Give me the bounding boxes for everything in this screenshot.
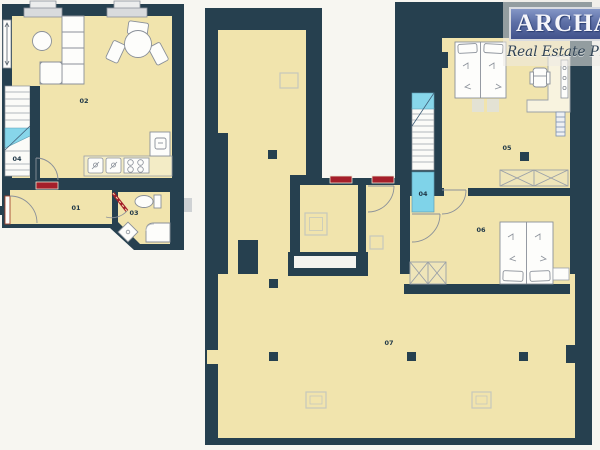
- bedside-rug: [487, 99, 499, 112]
- room-label-03: 03: [129, 209, 138, 217]
- room06-south-wall: [404, 284, 570, 294]
- room-label-01: 01: [71, 204, 81, 212]
- wall-stub: [238, 240, 258, 274]
- window-radiator: [3, 20, 11, 68]
- hallway-floor: [10, 190, 112, 224]
- column: [269, 279, 278, 288]
- room-label-07: 07: [384, 339, 393, 347]
- door-handle-tab: [184, 198, 192, 212]
- office-chair: [530, 68, 550, 87]
- lightwell-shaft: [294, 256, 356, 268]
- column: [269, 352, 278, 361]
- wardrobe-room06: [410, 262, 446, 284]
- room-label-04-right: 04: [418, 190, 428, 198]
- toilet: [135, 195, 161, 208]
- room-label-02: 02: [79, 97, 88, 105]
- left-staircase: [5, 86, 40, 178]
- radiator: [556, 112, 565, 136]
- stove: [124, 158, 149, 173]
- room05-06-wall-opening: [444, 188, 468, 196]
- room-label-05: 05: [502, 144, 512, 152]
- bay-window-right: [107, 1, 147, 17]
- middle-hall-floor: [366, 185, 400, 277]
- nightstand: [553, 268, 569, 280]
- side-table: [33, 32, 52, 51]
- brand-name: ARCHA: [516, 10, 600, 38]
- door-sill-red: [372, 176, 394, 183]
- bay-window-left: [24, 1, 62, 17]
- column: [268, 150, 277, 159]
- logo-banner: ARCHA: [509, 7, 600, 41]
- left-staircase-wall: [30, 86, 40, 178]
- column: [520, 152, 529, 161]
- bedside-rug: [472, 99, 484, 112]
- room05-wall-tab: [442, 52, 448, 68]
- left-unit-plan: 02 04 01 03: [0, 1, 192, 250]
- left-wall-recess: [207, 350, 218, 364]
- room-label-06: 06: [476, 226, 486, 234]
- wardrobe-room05: [500, 170, 568, 186]
- right-staircase-blue-flight: [412, 93, 434, 109]
- floor-plan-drawing: 02 04 01 03: [0, 0, 600, 450]
- door-sill-red: [36, 182, 58, 189]
- right-unit-plan: 05 04 06 07: [205, 2, 592, 445]
- agency-logo: ARCHA Real Estate Prague: [503, 0, 600, 66]
- twin-beds-room05: [455, 42, 506, 98]
- brand-tagline: Real Estate Prague: [507, 44, 600, 60]
- room-label-04-left: 04: [12, 155, 22, 163]
- floor-plan-page: 02 04 01 03: [0, 0, 600, 450]
- kitchen-counter: [84, 156, 172, 176]
- double-bed-room06: [500, 222, 553, 284]
- door-sill-red: [330, 176, 352, 183]
- column: [519, 352, 528, 361]
- fridge: [150, 132, 170, 156]
- lightwell-room-floor: [300, 185, 358, 258]
- room07-wall-tab: [566, 345, 575, 363]
- column: [407, 352, 416, 361]
- corner-shower: [146, 223, 170, 242]
